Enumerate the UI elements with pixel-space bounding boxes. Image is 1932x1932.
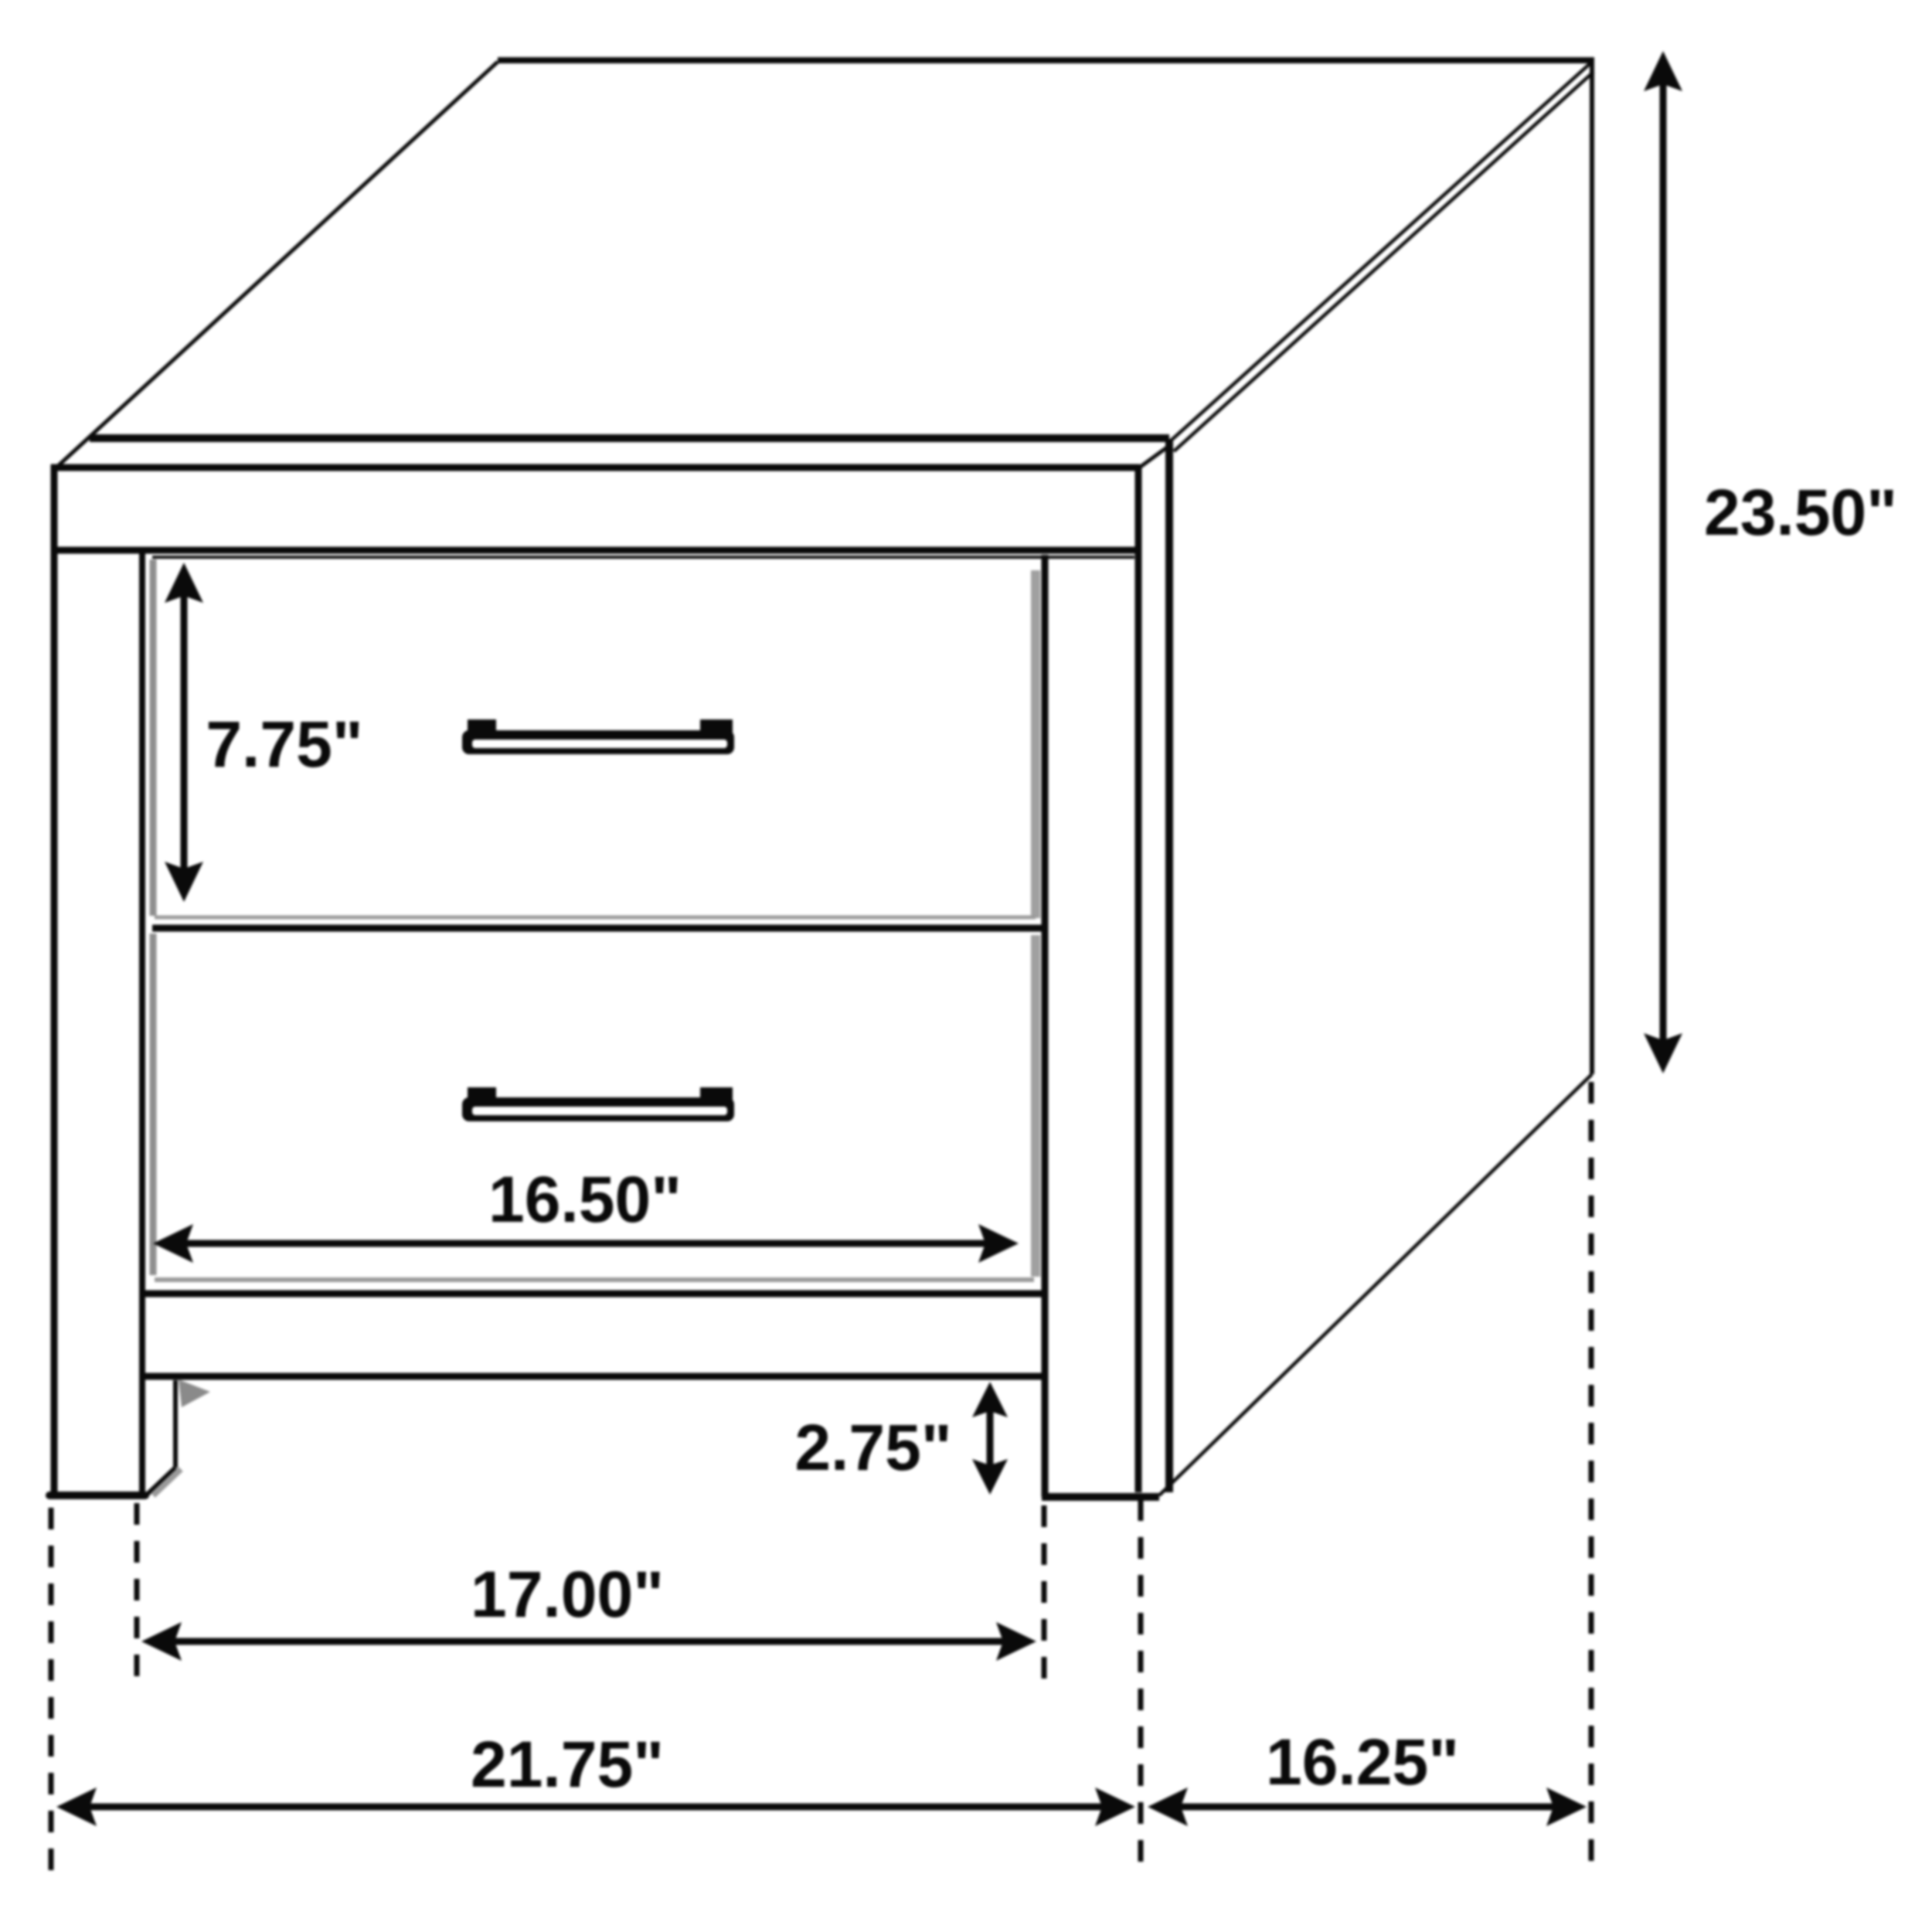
svg-text:21.75": 21.75" [471,1728,664,1801]
svg-text:16.25": 16.25" [1266,1726,1459,1798]
svg-text:2.75": 2.75" [794,1411,951,1484]
svg-text:16.50": 16.50" [488,1163,682,1236]
svg-text:23.50": 23.50" [1704,476,1897,549]
svg-text:7.75": 7.75" [206,708,362,781]
svg-text:17.00": 17.00" [471,1558,664,1631]
